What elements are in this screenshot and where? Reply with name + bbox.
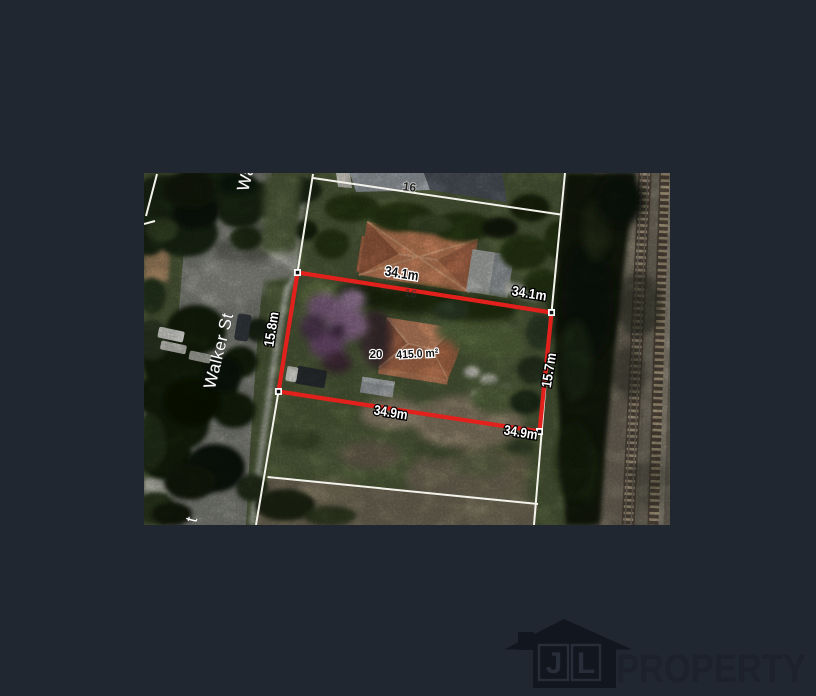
svg-text:16: 16 xyxy=(403,287,417,301)
svg-text:PROPERTY: PROPERTY xyxy=(616,647,806,691)
svg-text:16: 16 xyxy=(402,179,417,195)
svg-text:415.0 m²: 415.0 m² xyxy=(396,347,439,361)
svg-text:L: L xyxy=(577,647,595,680)
svg-text:20: 20 xyxy=(370,349,383,361)
svg-text:J: J xyxy=(546,647,563,680)
